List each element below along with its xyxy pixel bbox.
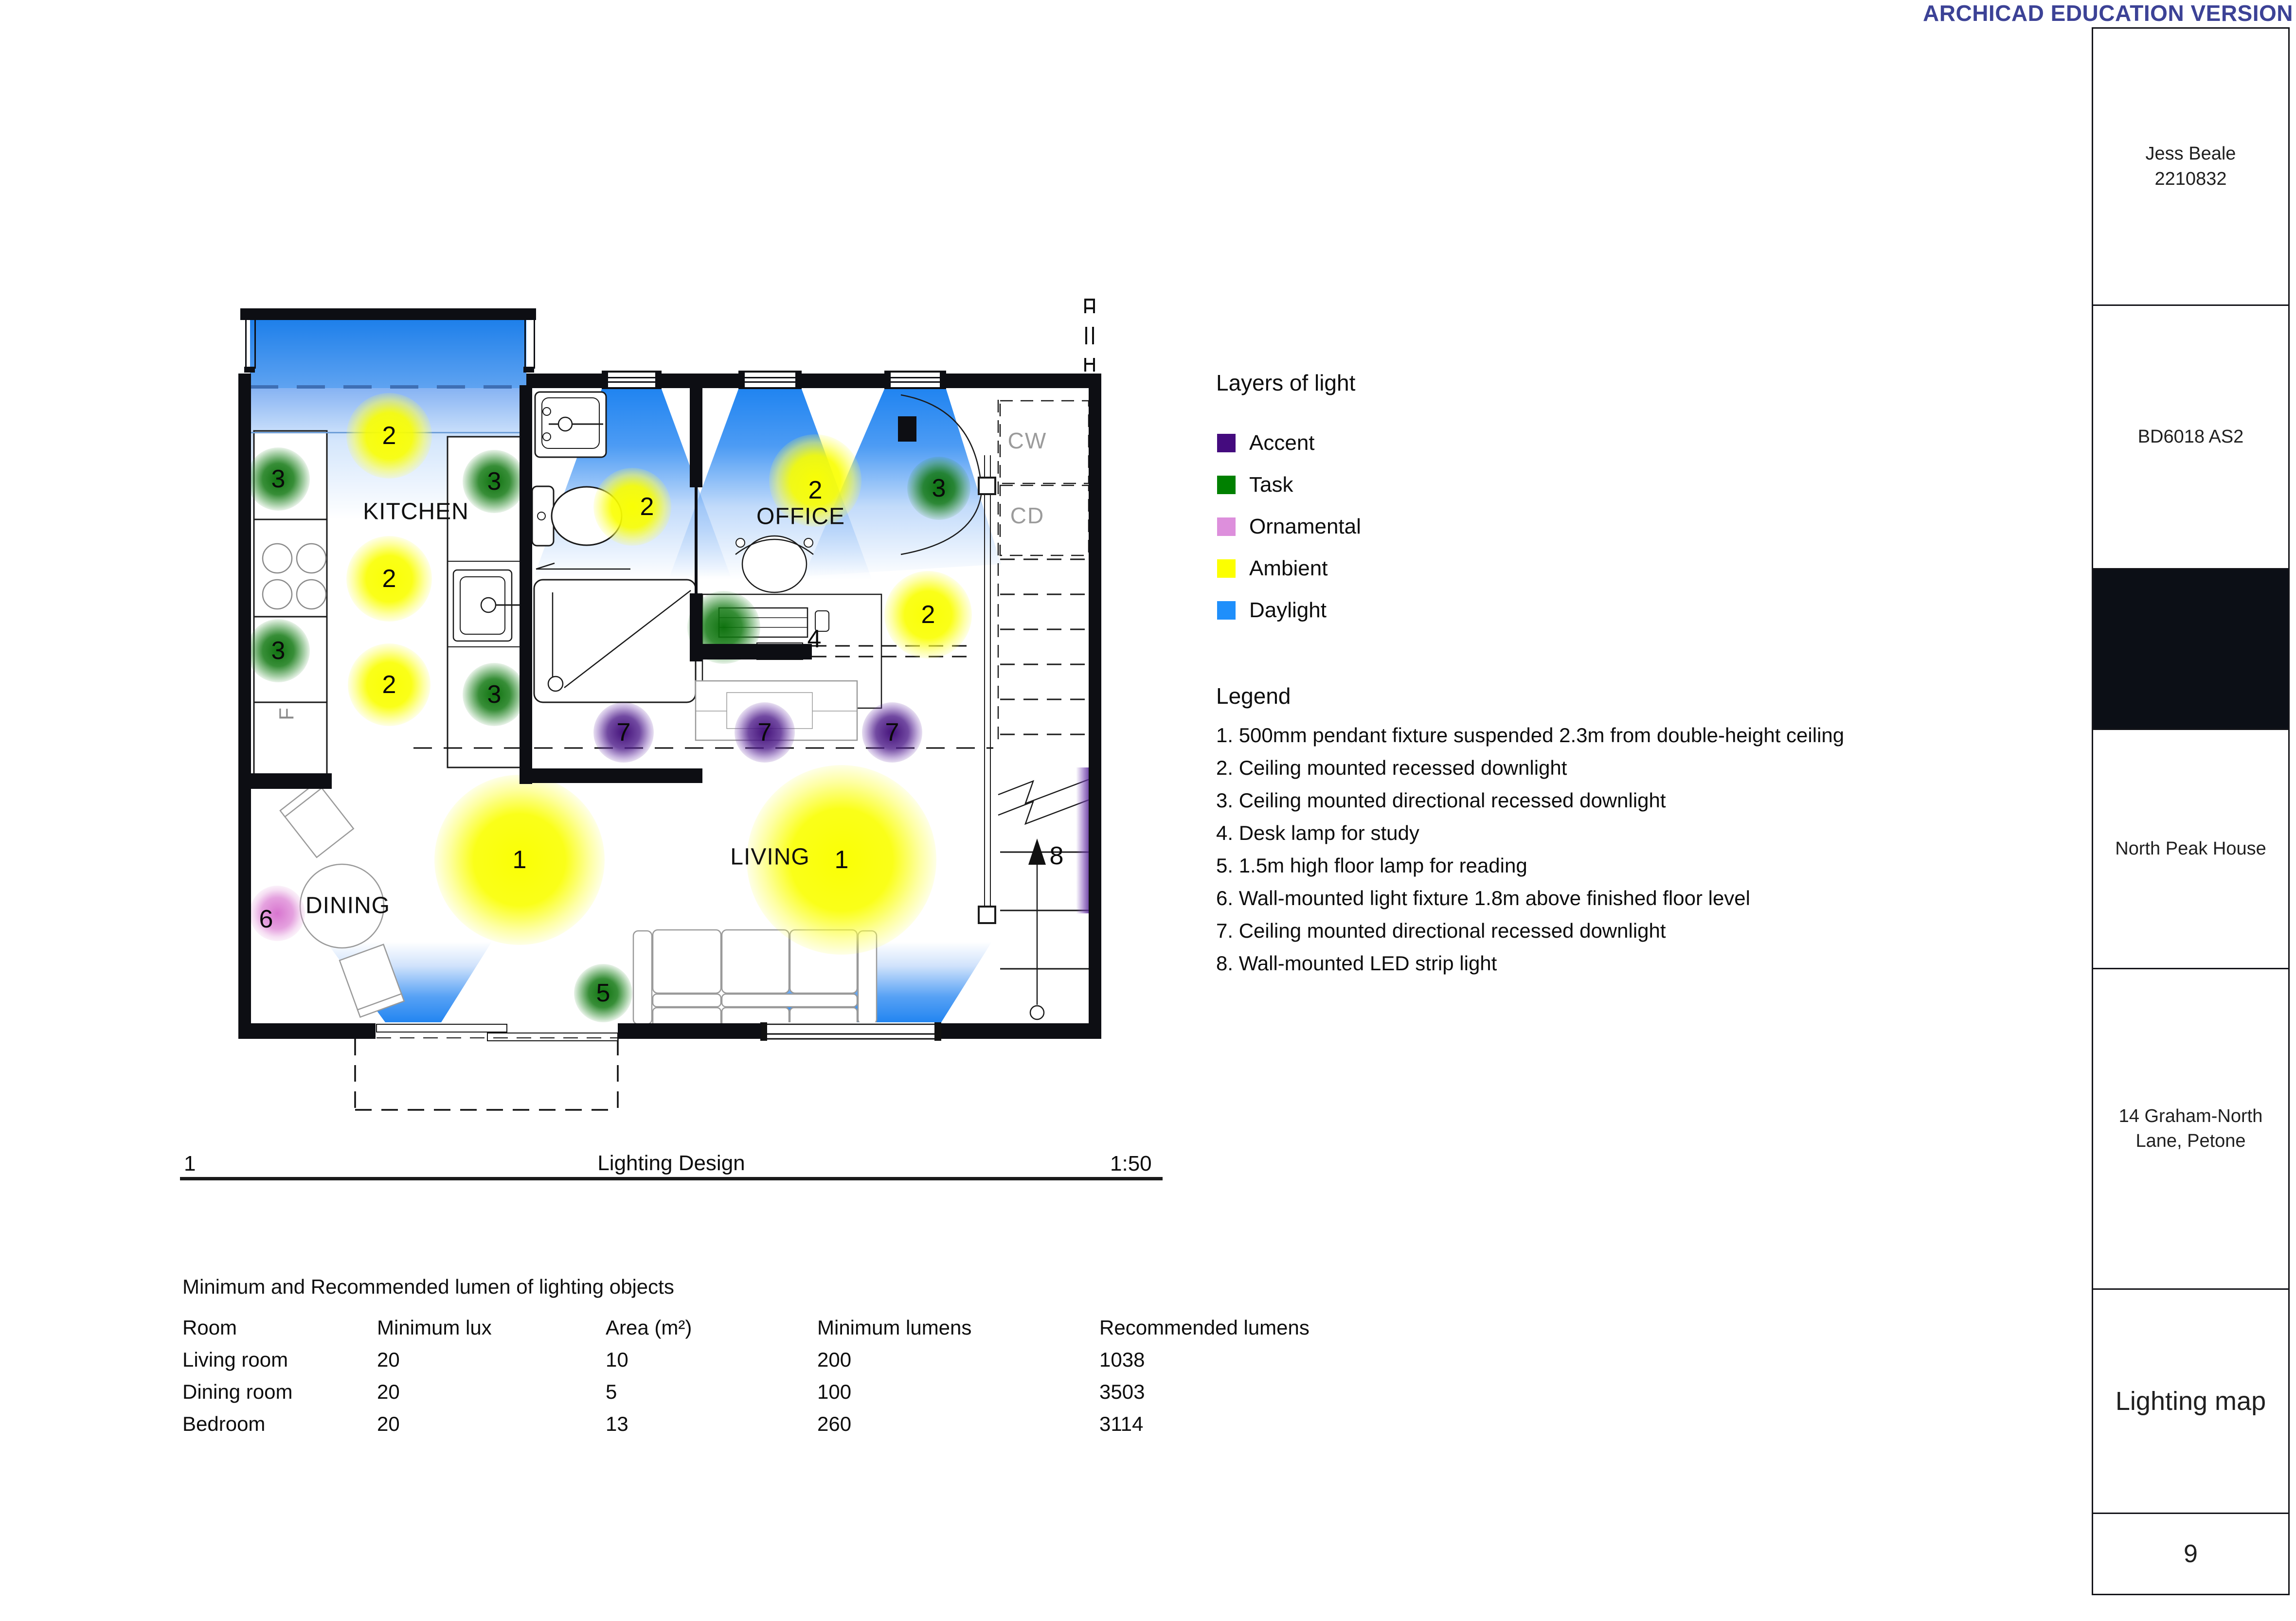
wall-bath-office <box>690 385 702 487</box>
legend-item: 6. Wall-mounted light fixture 1.8m above… <box>1216 882 1844 914</box>
title-underline <box>180 1177 1163 1180</box>
light-marker-task: 5 <box>574 964 632 1022</box>
student-name: Jess Beale <box>2146 142 2236 166</box>
light-marker-task: 3 <box>463 450 526 513</box>
table-cell: 20 <box>377 1380 606 1412</box>
titleblock-course: BD6018 AS2 <box>2093 306 2288 570</box>
legend-title: Legend <box>1216 683 1291 709</box>
wall-office-bottom <box>702 644 812 659</box>
marker-label-4: 4 <box>807 624 822 654</box>
legend-item: 8. Wall-mounted LED strip light <box>1216 947 1844 980</box>
accent-swatch <box>1217 434 1236 452</box>
bay-window-cap <box>244 367 255 373</box>
titleblock-project: North Peak House <box>2093 730 2288 969</box>
legend-item: 5. 1.5m high floor lamp for reading <box>1216 849 1844 882</box>
light-marker-pendant: 1 <box>434 775 605 945</box>
bay-opening-dashed-line <box>250 385 526 389</box>
pocket-door <box>695 487 698 593</box>
deck-outline <box>355 1039 618 1110</box>
titleblock-author: Jess Beale 2210832 <box>2093 29 2288 306</box>
bay-window-cap <box>523 367 534 373</box>
legend-row-daylight: Daylight <box>1217 589 1361 631</box>
legend-item: 2. Ceiling mounted recessed downlight <box>1216 751 1844 784</box>
table-cell: Living room <box>182 1348 377 1380</box>
legend-list: 1. 500mm pendant fixture suspended 2.3m … <box>1216 719 1844 980</box>
table-cell: 20 <box>377 1348 606 1380</box>
table-cell: 200 <box>817 1348 1099 1380</box>
wall-bath-bottom <box>520 768 702 783</box>
room-label-office: OFFICE <box>756 503 845 530</box>
table-cell: 100 <box>817 1380 1099 1412</box>
lumen-table-title: Minimum and Recommended lumen of lightin… <box>182 1275 674 1299</box>
light-marker-accent: 7 <box>862 702 922 763</box>
archicad-watermark: ARCHICAD EDUCATION VERSION <box>1923 0 2293 26</box>
titleblock-address: 14 Graham-North Lane, Petone <box>2093 969 2288 1290</box>
col-header: Minimum lux <box>377 1316 606 1335</box>
label-cd: CD <box>1010 502 1044 529</box>
light-marker-ambient: 2 <box>884 571 972 659</box>
col-header: Recommended lumens <box>1099 1316 1401 1335</box>
layers-legend: Accent Task Ornamental Ambient Daylight <box>1217 422 1361 631</box>
light-marker-accent: 7 <box>593 702 654 763</box>
shower-door-arrow <box>536 563 630 569</box>
wall-top <box>526 374 603 388</box>
titleblock-sheet-title: Lighting map <box>2093 1290 2288 1514</box>
light-marker-ambient: 2 <box>593 468 671 546</box>
legend-item: 3. Ceiling mounted directional recessed … <box>1216 784 1844 817</box>
shower-tray <box>534 580 696 702</box>
legend-item: 1. 500mm pendant fixture suspended 2.3m … <box>1216 719 1844 751</box>
title-block: Jess Beale 2210832 BD6018 AS2 North Peak… <box>2092 27 2290 1595</box>
light-marker-task: 3 <box>247 619 310 682</box>
legend-item: 4. Desk lamp for study <box>1216 817 1844 849</box>
table-cell: 20 <box>377 1412 606 1444</box>
bay-side-window-right <box>524 320 535 369</box>
wall-right <box>1089 374 1101 1039</box>
table-cell: 3503 <box>1099 1380 1401 1412</box>
dining-chair <box>280 782 354 857</box>
legend-row-task: Task <box>1217 464 1361 506</box>
wall-kitchen-bath <box>520 385 532 784</box>
table-cell: 3114 <box>1099 1412 1401 1444</box>
wall-bottom <box>941 1023 1101 1039</box>
table-cell: 260 <box>817 1412 1099 1444</box>
wall-bath-office <box>690 593 702 661</box>
wall-dining-stub <box>238 773 332 789</box>
titleblock-logo-band <box>2093 570 2288 730</box>
layers-legend-title: Layers of light <box>1216 370 1355 396</box>
label-cw: CW <box>1008 428 1047 454</box>
wall-bottom <box>238 1023 376 1039</box>
legend-row-ornamental: Ornamental <box>1217 506 1361 548</box>
task-swatch <box>1217 476 1236 494</box>
stairs <box>979 400 1090 1019</box>
wall-bottom <box>618 1023 761 1039</box>
table-cell: 1038 <box>1099 1348 1401 1380</box>
room-label-living: LIVING <box>730 844 809 871</box>
table-cell: 5 <box>606 1380 817 1412</box>
legend-row-accent: Accent <box>1217 422 1361 464</box>
window-office-a <box>738 371 802 389</box>
light-marker-task: 3 <box>463 663 526 726</box>
legend-row-ambient: Ambient <box>1217 548 1361 589</box>
light-marker-accent: 7 <box>735 702 795 763</box>
living-window <box>760 1022 941 1042</box>
student-id: 2210832 <box>2155 167 2227 192</box>
col-header: Room <box>182 1316 377 1335</box>
wall-left <box>238 374 251 1039</box>
bay-window-frame <box>240 308 536 320</box>
lumen-table: Room Minimum lux Area (m²) Minimum lumen… <box>182 1316 1401 1444</box>
bay-side-window-left <box>245 320 256 369</box>
daylight-swatch <box>1217 601 1236 620</box>
entry-pier <box>898 416 916 442</box>
sliding-door <box>377 1024 618 1041</box>
col-header: Minimum lumens <box>817 1316 1099 1335</box>
table-cell: Bedroom <box>182 1412 377 1444</box>
light-marker-task: 3 <box>907 457 970 520</box>
table-cell: 13 <box>606 1412 817 1444</box>
wall-top <box>802 374 884 388</box>
label-fridge: F <box>275 708 298 720</box>
light-marker-ambient: 2 <box>348 643 430 726</box>
light-marker-ambient: 2 <box>346 536 432 622</box>
drawing-scale: 1:50 <box>1110 1152 1152 1176</box>
stair-up-arrow <box>1028 838 1046 1019</box>
legend-item: 7. Ceiling mounted directional recessed … <box>1216 914 1844 947</box>
drawing-number: 1 <box>184 1152 196 1176</box>
marker-label-8: 8 <box>1050 841 1064 871</box>
ornamental-swatch <box>1217 517 1236 536</box>
light-marker-ambient: 2 <box>346 393 432 479</box>
bathroom-sink <box>535 392 606 457</box>
window-office-b <box>884 371 946 389</box>
room-label-kitchen: KITCHEN <box>363 499 469 525</box>
lighting-plan-sheet: ARCHICAD EDUCATION VERSION <box>0 0 2296 1621</box>
window-bathroom <box>602 371 662 389</box>
light-marker-ornamental: 6 <box>250 886 305 941</box>
col-header: Area (m²) <box>606 1316 817 1335</box>
light-marker-task: 3 <box>247 447 310 511</box>
room-label-dining: DINING <box>305 892 390 919</box>
table-cell: Dining room <box>182 1380 377 1412</box>
titleblock-page-number: 9 <box>2093 1514 2288 1594</box>
drawing-name: Lighting Design <box>597 1151 745 1176</box>
table-cell: 10 <box>606 1348 817 1380</box>
wall-top <box>946 374 1101 388</box>
section-marker <box>1085 300 1094 372</box>
ambient-swatch <box>1217 559 1236 578</box>
dining-chair <box>340 944 404 1017</box>
